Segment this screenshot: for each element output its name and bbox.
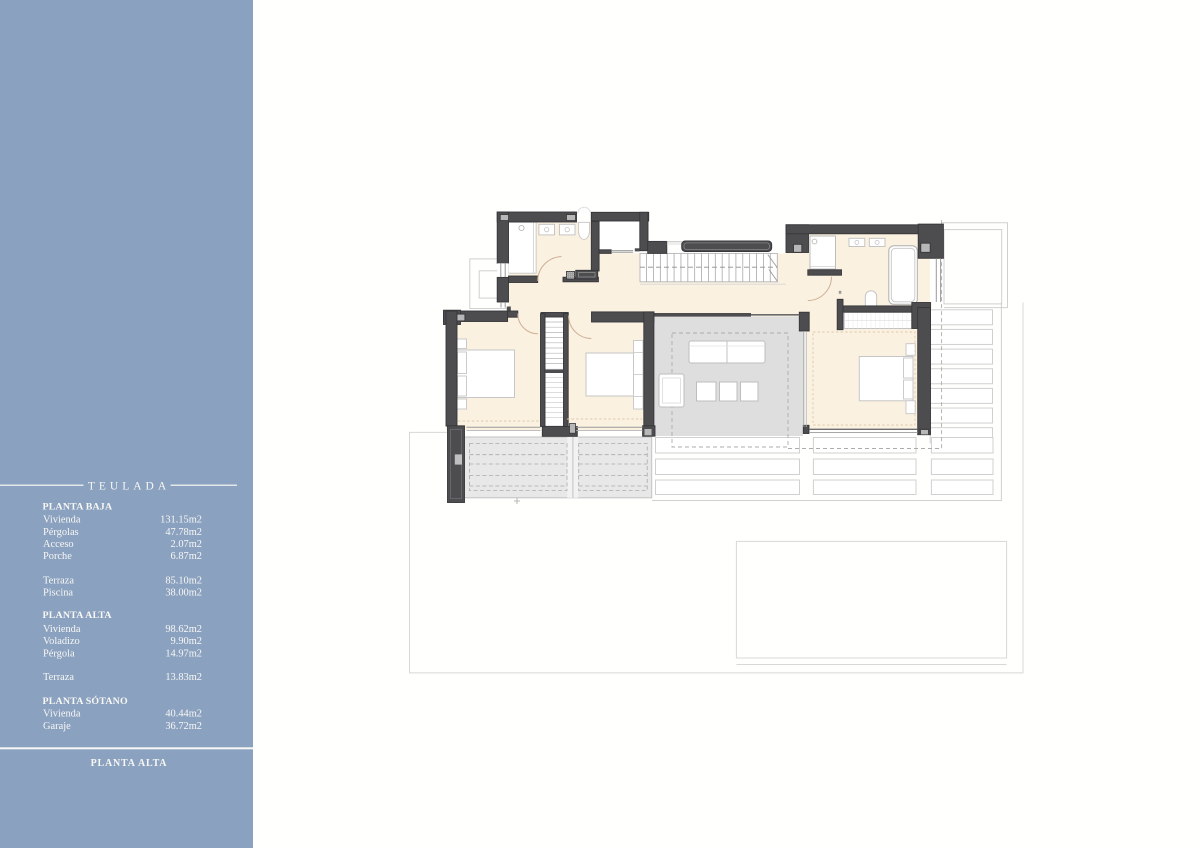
svg-text:Porche: Porche — [43, 551, 72, 562]
svg-text:38.00m2: 38.00m2 — [165, 588, 202, 599]
svg-text:Voladizo: Voladizo — [43, 636, 80, 647]
svg-text:2.07m2: 2.07m2 — [171, 539, 202, 550]
svg-text:Terraza: Terraza — [43, 575, 74, 586]
svg-text:13.83m2: 13.83m2 — [165, 672, 202, 683]
svg-text:85.10m2: 85.10m2 — [165, 575, 202, 586]
svg-text:Vivienda: Vivienda — [43, 624, 81, 635]
svg-text:14.97m2: 14.97m2 — [165, 648, 202, 659]
svg-text:Vivienda: Vivienda — [43, 709, 81, 720]
svg-text:Pérgolas: Pérgolas — [43, 527, 79, 538]
svg-text:9.90m2: 9.90m2 — [171, 636, 202, 647]
svg-text:PLANTA BAJA: PLANTA BAJA — [43, 501, 113, 512]
svg-text:6.87m2: 6.87m2 — [171, 551, 202, 562]
svg-text:36.72m2: 36.72m2 — [165, 721, 202, 732]
svg-text:Piscina: Piscina — [43, 588, 73, 599]
svg-text:Vivienda: Vivienda — [43, 515, 81, 526]
svg-text:Garaje: Garaje — [43, 721, 71, 732]
svg-text:98.62m2: 98.62m2 — [165, 624, 202, 635]
svg-text:Pérgola: Pérgola — [43, 648, 75, 659]
svg-text:PLANTA SÓTANO: PLANTA SÓTANO — [43, 695, 128, 707]
svg-text:PLANTA ALTA: PLANTA ALTA — [43, 610, 113, 621]
svg-text:PLANTA ALTA: PLANTA ALTA — [91, 758, 168, 769]
svg-text:40.44m2: 40.44m2 — [165, 709, 202, 720]
svg-text:47.78m2: 47.78m2 — [165, 527, 202, 538]
svg-text:131.15m2: 131.15m2 — [160, 515, 202, 526]
svg-text:Acceso: Acceso — [43, 539, 74, 550]
svg-text:TEULADA: TEULADA — [88, 481, 170, 493]
svg-text:Terraza: Terraza — [43, 672, 74, 683]
